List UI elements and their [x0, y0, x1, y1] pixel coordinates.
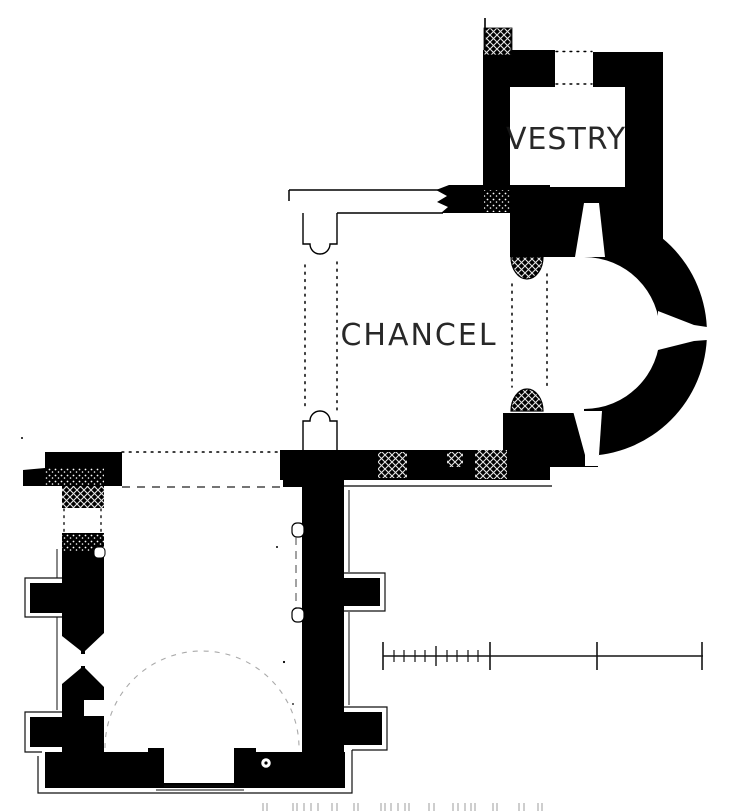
- wall-stub-hatch: [484, 28, 512, 55]
- door-jamb-west: [148, 748, 164, 785]
- blocked-arch-jamb-south: [292, 608, 304, 622]
- west-window-slit: [79, 654, 87, 666]
- repair-hatch-1: [378, 452, 407, 478]
- room-label-chancel: CHANCEL: [338, 318, 500, 354]
- ink-speck-4: [21, 437, 23, 439]
- buttress-west-1: [30, 583, 64, 613]
- apse-respond-north: [511, 257, 543, 279]
- font-center-dot: [264, 761, 267, 764]
- ink-speck-3: [292, 703, 294, 705]
- south-doorway: [164, 752, 234, 783]
- ink-speck-1: [276, 546, 278, 548]
- chancel-respond-southwest: [303, 411, 337, 450]
- blocked-arch-jamb-north: [292, 523, 304, 537]
- chancel-north-wall-broken-end: [436, 185, 483, 213]
- former-apse-arc: [105, 651, 299, 748]
- repair-hatch-2: [447, 452, 463, 467]
- vestry-north-wall-west: [483, 50, 555, 87]
- room-label-vestry: VESTRY: [504, 122, 628, 158]
- masonry-stipple-vestry: [484, 190, 510, 212]
- chancel-respond-northwest: [303, 213, 337, 254]
- wall-recess: [84, 700, 104, 716]
- blocked-jamb-west: [94, 547, 105, 558]
- door-jamb-east: [234, 748, 256, 785]
- floor-plan-figure: VESTRY CHANCEL: [0, 0, 736, 812]
- buttress-east-2: [344, 712, 382, 745]
- masonry-hatch-northwest: [62, 484, 104, 508]
- apse-south-window-mouth: [585, 453, 598, 466]
- west-doorway-gap: [61, 508, 105, 533]
- cut-off-caption: [263, 803, 542, 811]
- buttress-east-1: [344, 578, 380, 606]
- buttress-west-2: [30, 717, 64, 747]
- repair-hatch-3: [475, 450, 507, 479]
- ink-speck-2: [283, 661, 285, 663]
- nave-east-wall: [302, 453, 344, 755]
- apse-respond-south: [511, 389, 543, 411]
- masonry-stipple-northwest: [45, 468, 104, 486]
- scale-bar: [383, 642, 703, 670]
